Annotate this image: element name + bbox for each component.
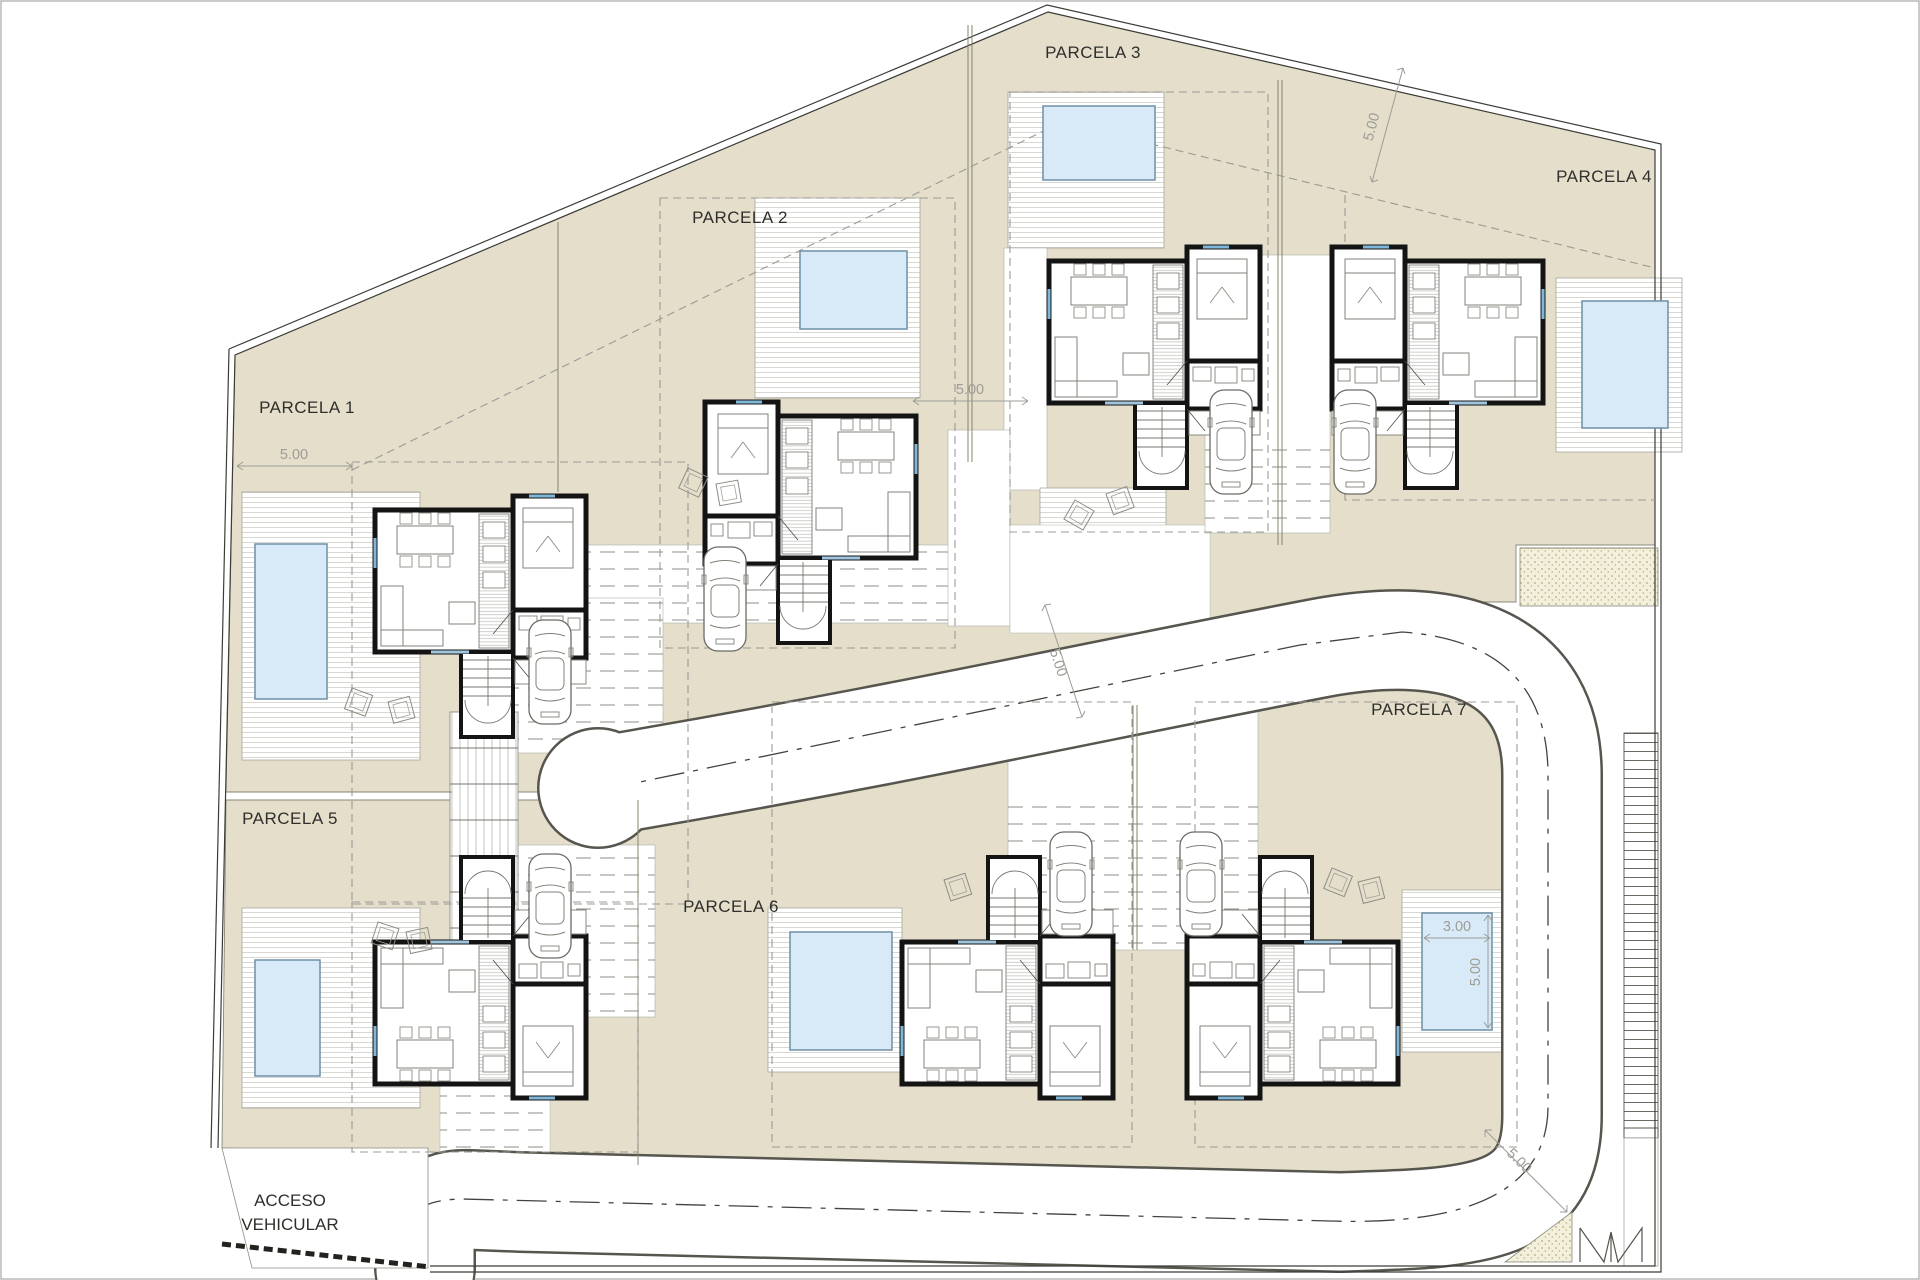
car: [702, 547, 748, 651]
car: [1178, 832, 1224, 936]
car: [1332, 390, 1378, 494]
car: [1208, 390, 1254, 494]
pool-parcela6: [790, 932, 892, 1050]
parcel-label-5: PARCELA 5: [242, 809, 338, 828]
parcel-label-4: PARCELA 4: [1556, 167, 1652, 186]
pool-parcela2: [800, 251, 907, 329]
site-plan-drawing: 5.00 5.00 5.00 5.00 5.00 3.00 5.00 PARCE…: [0, 0, 1920, 1280]
dimension-label: 5.00: [956, 382, 984, 398]
pool-parcela5: [255, 960, 320, 1076]
dimension-label: 3.00: [1443, 919, 1471, 935]
car: [527, 620, 573, 724]
site-plan-canvas: 5.00 5.00 5.00 5.00 5.00 3.00 5.00 PARCE…: [0, 0, 1920, 1280]
access-label-line2: VEHICULAR: [241, 1215, 338, 1234]
parcel-label-6: PARCELA 6: [683, 897, 779, 916]
parcel-label-7: PARCELA 7: [1371, 700, 1467, 719]
car: [527, 854, 573, 958]
parcel-label-1: PARCELA 1: [259, 398, 355, 417]
side-steps: [1624, 733, 1658, 1129]
pool-parcela1: [255, 544, 327, 699]
parcel-label-2: PARCELA 2: [692, 208, 788, 227]
access-label-line1: ACCESO: [254, 1191, 326, 1210]
car: [1048, 832, 1094, 936]
pool-parcela3: [1043, 106, 1155, 180]
pool-parcela4: [1582, 301, 1668, 428]
dimension-label: 5.00: [280, 447, 308, 463]
parcel-label-3: PARCELA 3: [1045, 43, 1141, 62]
landscape-strip: [1520, 548, 1658, 606]
dimension-label: 5.00: [1468, 958, 1484, 986]
